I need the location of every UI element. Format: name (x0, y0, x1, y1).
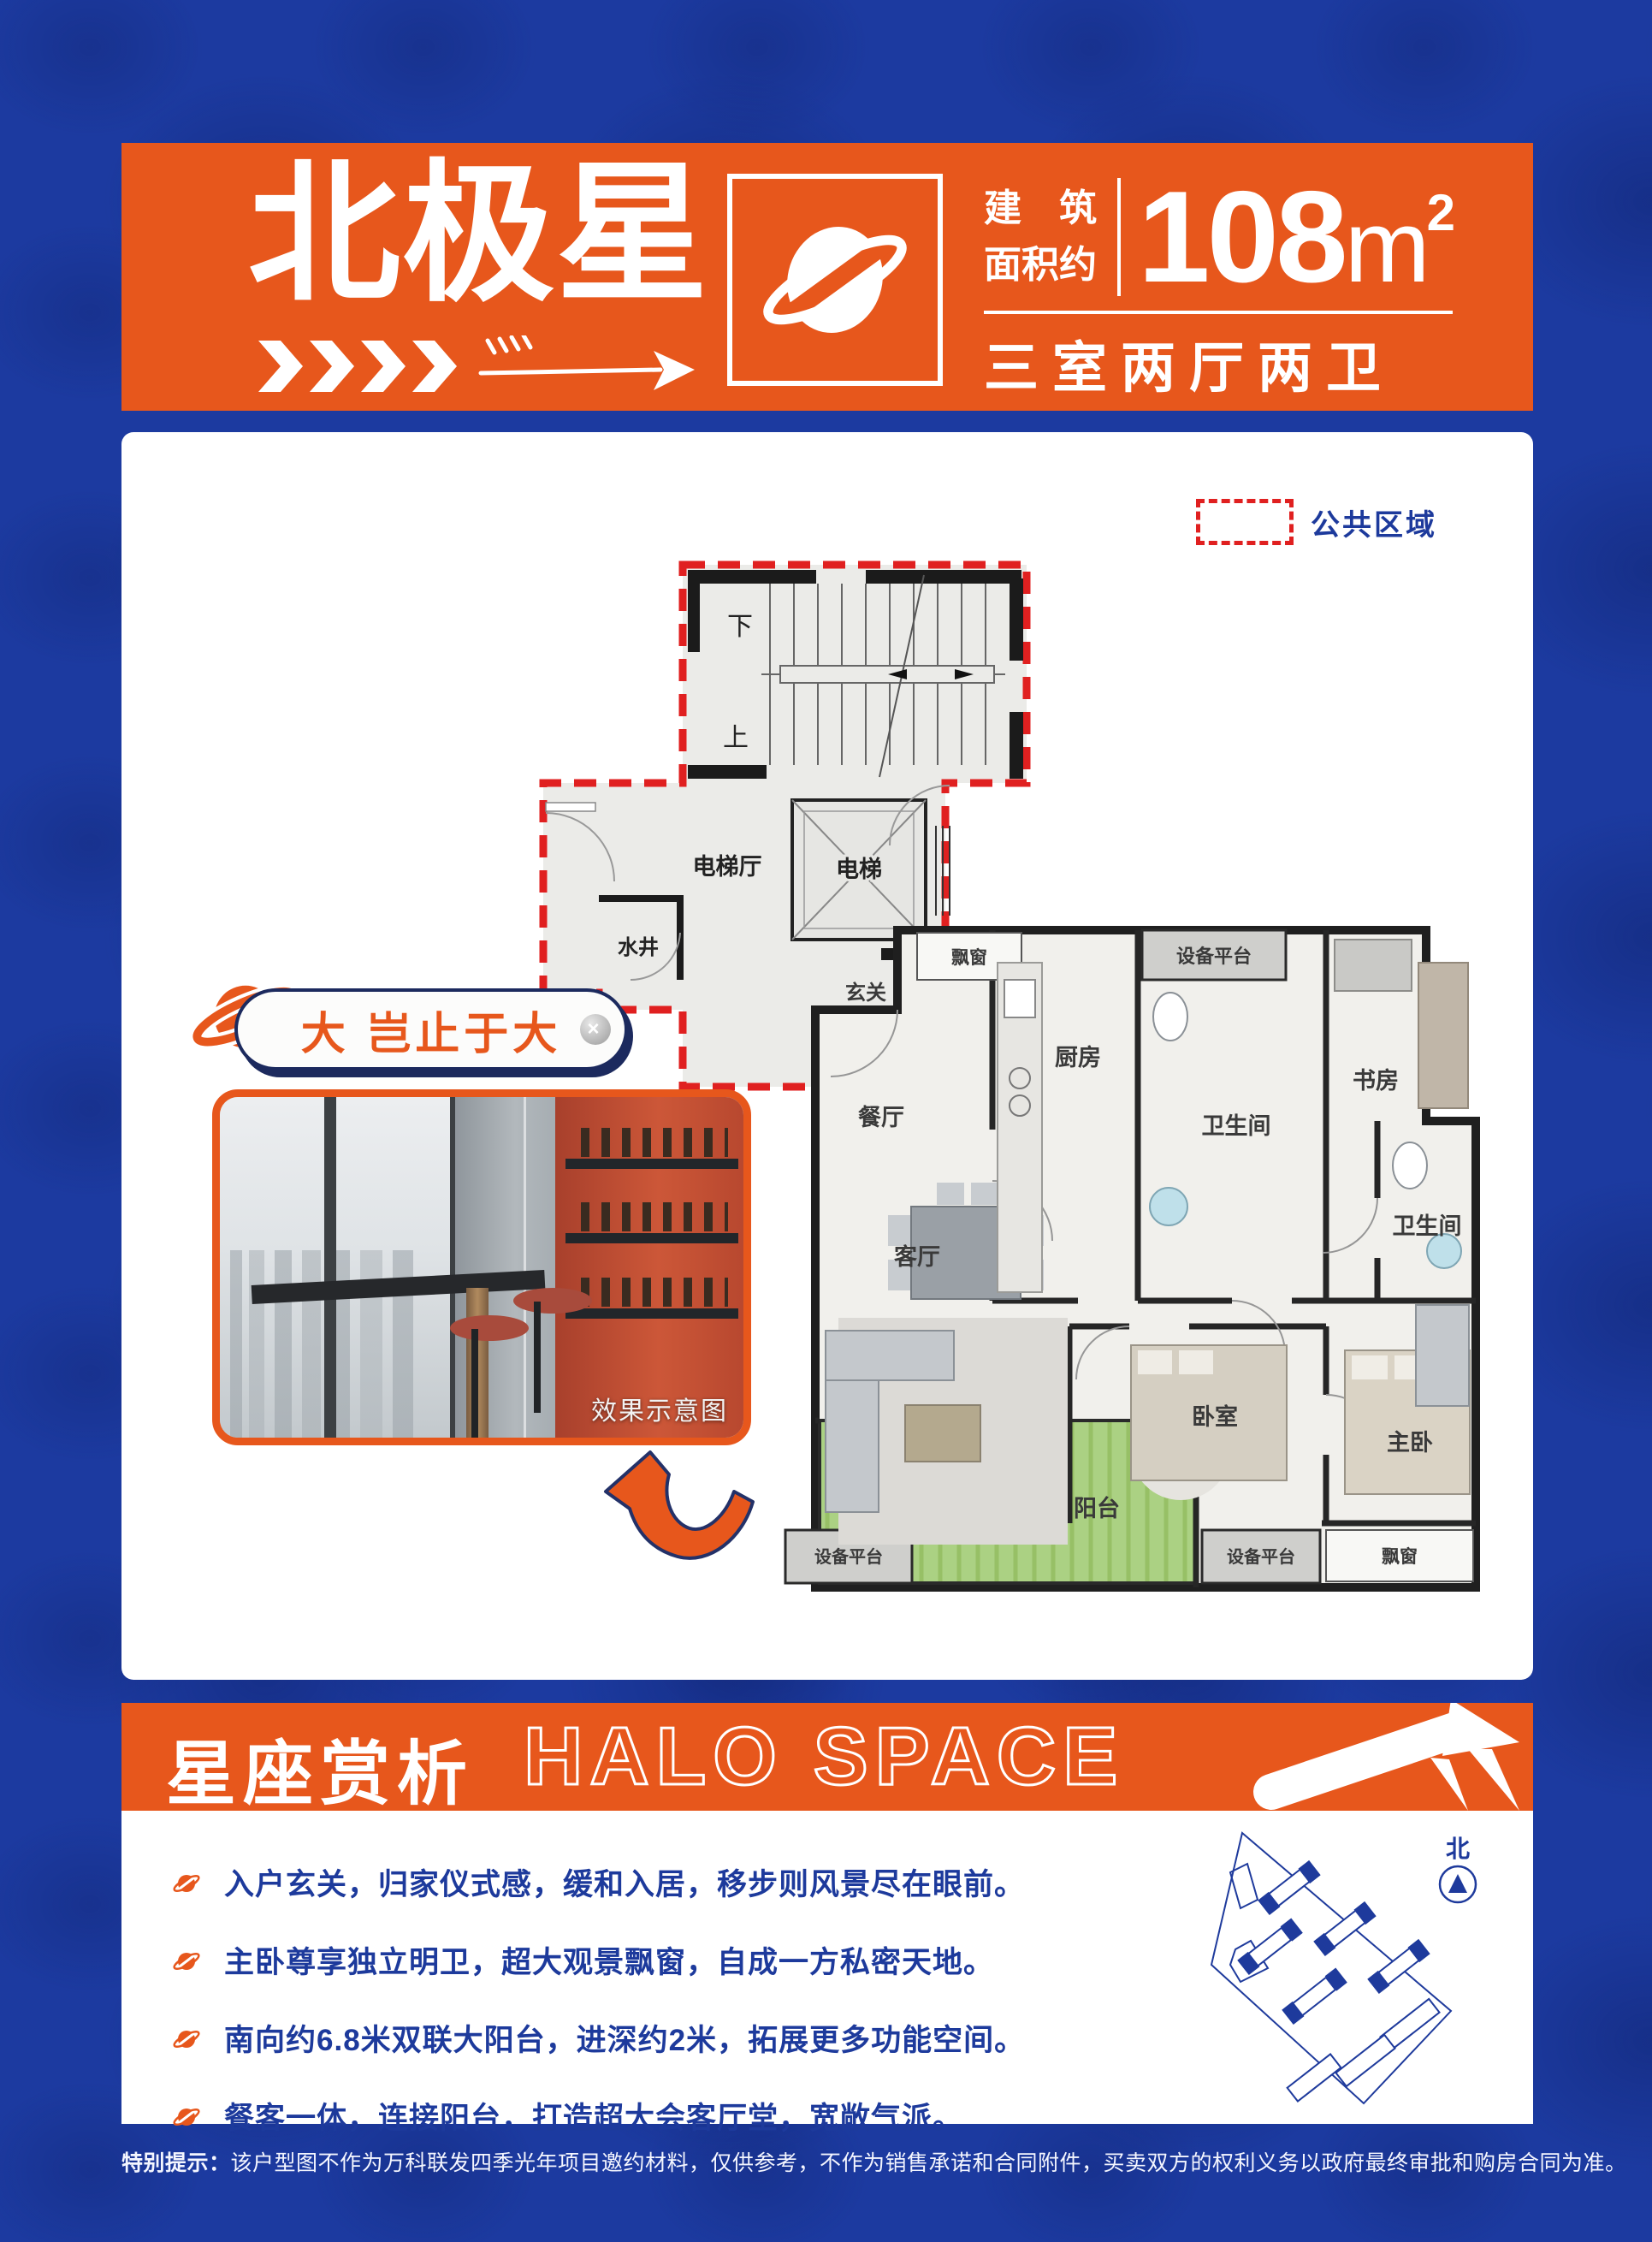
label-stairs-up: 上 (723, 724, 749, 752)
bottles-row (581, 1128, 727, 1157)
room-label-kitchen: 厨房 (1055, 1045, 1101, 1071)
paper-plane-icon (1247, 1703, 1521, 1811)
bar-stool (450, 1315, 529, 1341)
disclaimer: 特别提示：该户型图不作为万科联发四季光年项目邀约材料，仅供参考，不作为销售承诺和… (121, 2146, 1559, 2177)
room-label-balcony: 阳台 (1074, 1495, 1120, 1521)
interior-photo: 效果示意图 (212, 1089, 751, 1445)
area-number: 108 (1138, 164, 1345, 310)
room-label-elevator-hall: 电梯厅 (693, 854, 762, 880)
room-label-equip-bl: 设备平台 (814, 1546, 883, 1567)
features-panel: 入户玄关，归家仪式感，缓和入居，移步则风景尽在眼前。 主卧尊享独立明卫，超大观景… (121, 1811, 1533, 2124)
disclaimer-text: 该户型图不作为万科联发四季光年项目邀约材料，仅供参考，不作为销售承诺和合同附件，… (231, 2151, 1627, 2175)
cabinet-shelf (565, 1159, 738, 1169)
planet-bullet-icon (171, 1867, 202, 1898)
room-label-study: 书房 (1353, 1068, 1399, 1094)
site-map: 北 (1186, 1821, 1511, 2119)
label-stairs-down: 下 (727, 613, 753, 641)
screw-icon: × (580, 1014, 611, 1045)
cabinet-shelf (565, 1308, 738, 1319)
divider-rule (984, 311, 1453, 314)
section-title-en: HALO SPACE (524, 1710, 1124, 1804)
room-label-water-well: 水井 (618, 936, 659, 959)
room-label-equip-bm: 设备平台 (1227, 1546, 1295, 1567)
area-value: 108m2 (1138, 172, 1452, 302)
room-label-bedroom: 卧室 (1192, 1403, 1238, 1430)
room-label-bath-right: 卫生间 (1393, 1213, 1462, 1239)
disclaimer-prefix: 特别提示： (121, 2151, 231, 2175)
site-buildings (1237, 1860, 1439, 2102)
slogan-pill: 大 岂止于大 × (234, 988, 628, 1071)
planet-bullet-icon (171, 1945, 202, 1976)
cabinet-shelf (565, 1233, 738, 1243)
page-title: 北极星 (248, 158, 710, 311)
photo-wall-line (524, 1097, 526, 1438)
layout-text: 三室两厅两卫 (984, 324, 1497, 403)
area-superscript: 2 (1427, 184, 1452, 241)
bar-stool-leg (534, 1302, 541, 1413)
curved-arrow-icon (601, 1449, 763, 1577)
section-title-cn: 星座赏析 (166, 1717, 474, 1811)
area-info: 建筑 面积约 108m2 三室两厅两卫 (984, 172, 1497, 403)
feature-text: 入户玄关，归家仪式感，缓和入居，移步则风景尽在眼前。 (224, 1860, 1025, 1904)
feature-text: 主卧尊享独立明卫，超大观景飘窗，自成一方私密天地。 (224, 1938, 994, 1982)
room-label-entry: 玄关 (845, 981, 886, 1005)
feature-text: 南向约6.8米双联大阳台，进深约2米，拓展更多功能空间。 (224, 2016, 1025, 2060)
feature-item: 主卧尊享独立明卫，超大观景飘窗，自成一方私密天地。 (171, 1938, 1025, 1982)
apartment-area: 玄关 飘窗 厨房 设备平台 卫生间 书房 餐厅 客厅 卧室 主卧 卫生间 阳台 … (785, 930, 1476, 1587)
north-label: 北 (1446, 1836, 1470, 1862)
planet-logo-box (727, 174, 943, 386)
area-label-line2: 面积约 (984, 237, 1097, 294)
planet-icon (754, 199, 916, 361)
room-label-equip-top: 设备平台 (1176, 946, 1252, 967)
feature-text: 餐客一体，连接阳台，打造超大会客厅堂，宽敞气派。 (224, 2094, 963, 2138)
area-unit: m (1345, 189, 1427, 304)
room-label-elevator: 电梯 (836, 857, 882, 882)
feature-item: 餐客一体，连接阳台，打造超大会客厅堂，宽敞气派。 (171, 2094, 1025, 2138)
planet-bullet-icon (171, 2023, 202, 2054)
feature-list: 入户玄关，归家仪式感，缓和入居，移步则风景尽在眼前。 主卧尊享独立明卫，超大观景… (171, 1860, 1025, 2172)
area-label: 建筑 面积约 (984, 181, 1097, 294)
room-label-living: 客厅 (894, 1243, 940, 1270)
feature-item: 入户玄关，归家仪式感，缓和入居，移步则风景尽在眼前。 (171, 1860, 1025, 1904)
window-mullion (324, 1097, 336, 1438)
header-banner: 北极星 建筑 面积约 108m2 (121, 143, 1533, 411)
room-label-bay-br: 飘窗 (1382, 1546, 1418, 1567)
photo-caption: 效果示意图 (591, 1390, 728, 1427)
bottles-row (581, 1202, 727, 1231)
feature-item: 南向约6.8米双联大阳台，进深约2米，拓展更多功能空间。 (171, 2016, 1025, 2060)
area-label-line1: 建筑 (984, 181, 1097, 237)
slogan-text: 大 岂止于大 (301, 998, 561, 1062)
arrow-decoration-icon (258, 335, 720, 397)
room-label-master: 主卧 (1387, 1430, 1433, 1456)
room-label-bath-top: 卫生间 (1202, 1113, 1271, 1139)
room-label-bay-top: 飘窗 (951, 947, 987, 968)
slogan-badge: 大 岂止于大 × (181, 970, 660, 1098)
bar-stool (513, 1288, 592, 1314)
floorplan-panel: 公共区域 (121, 432, 1533, 1680)
bar-stool-leg (471, 1329, 478, 1440)
planet-bullet-icon (171, 2101, 202, 2132)
section-banner: 星座赏析 HALO SPACE (121, 1703, 1533, 1811)
divider (1117, 178, 1121, 296)
bottles-row (581, 1278, 727, 1307)
room-label-dining: 餐厅 (858, 1105, 904, 1130)
